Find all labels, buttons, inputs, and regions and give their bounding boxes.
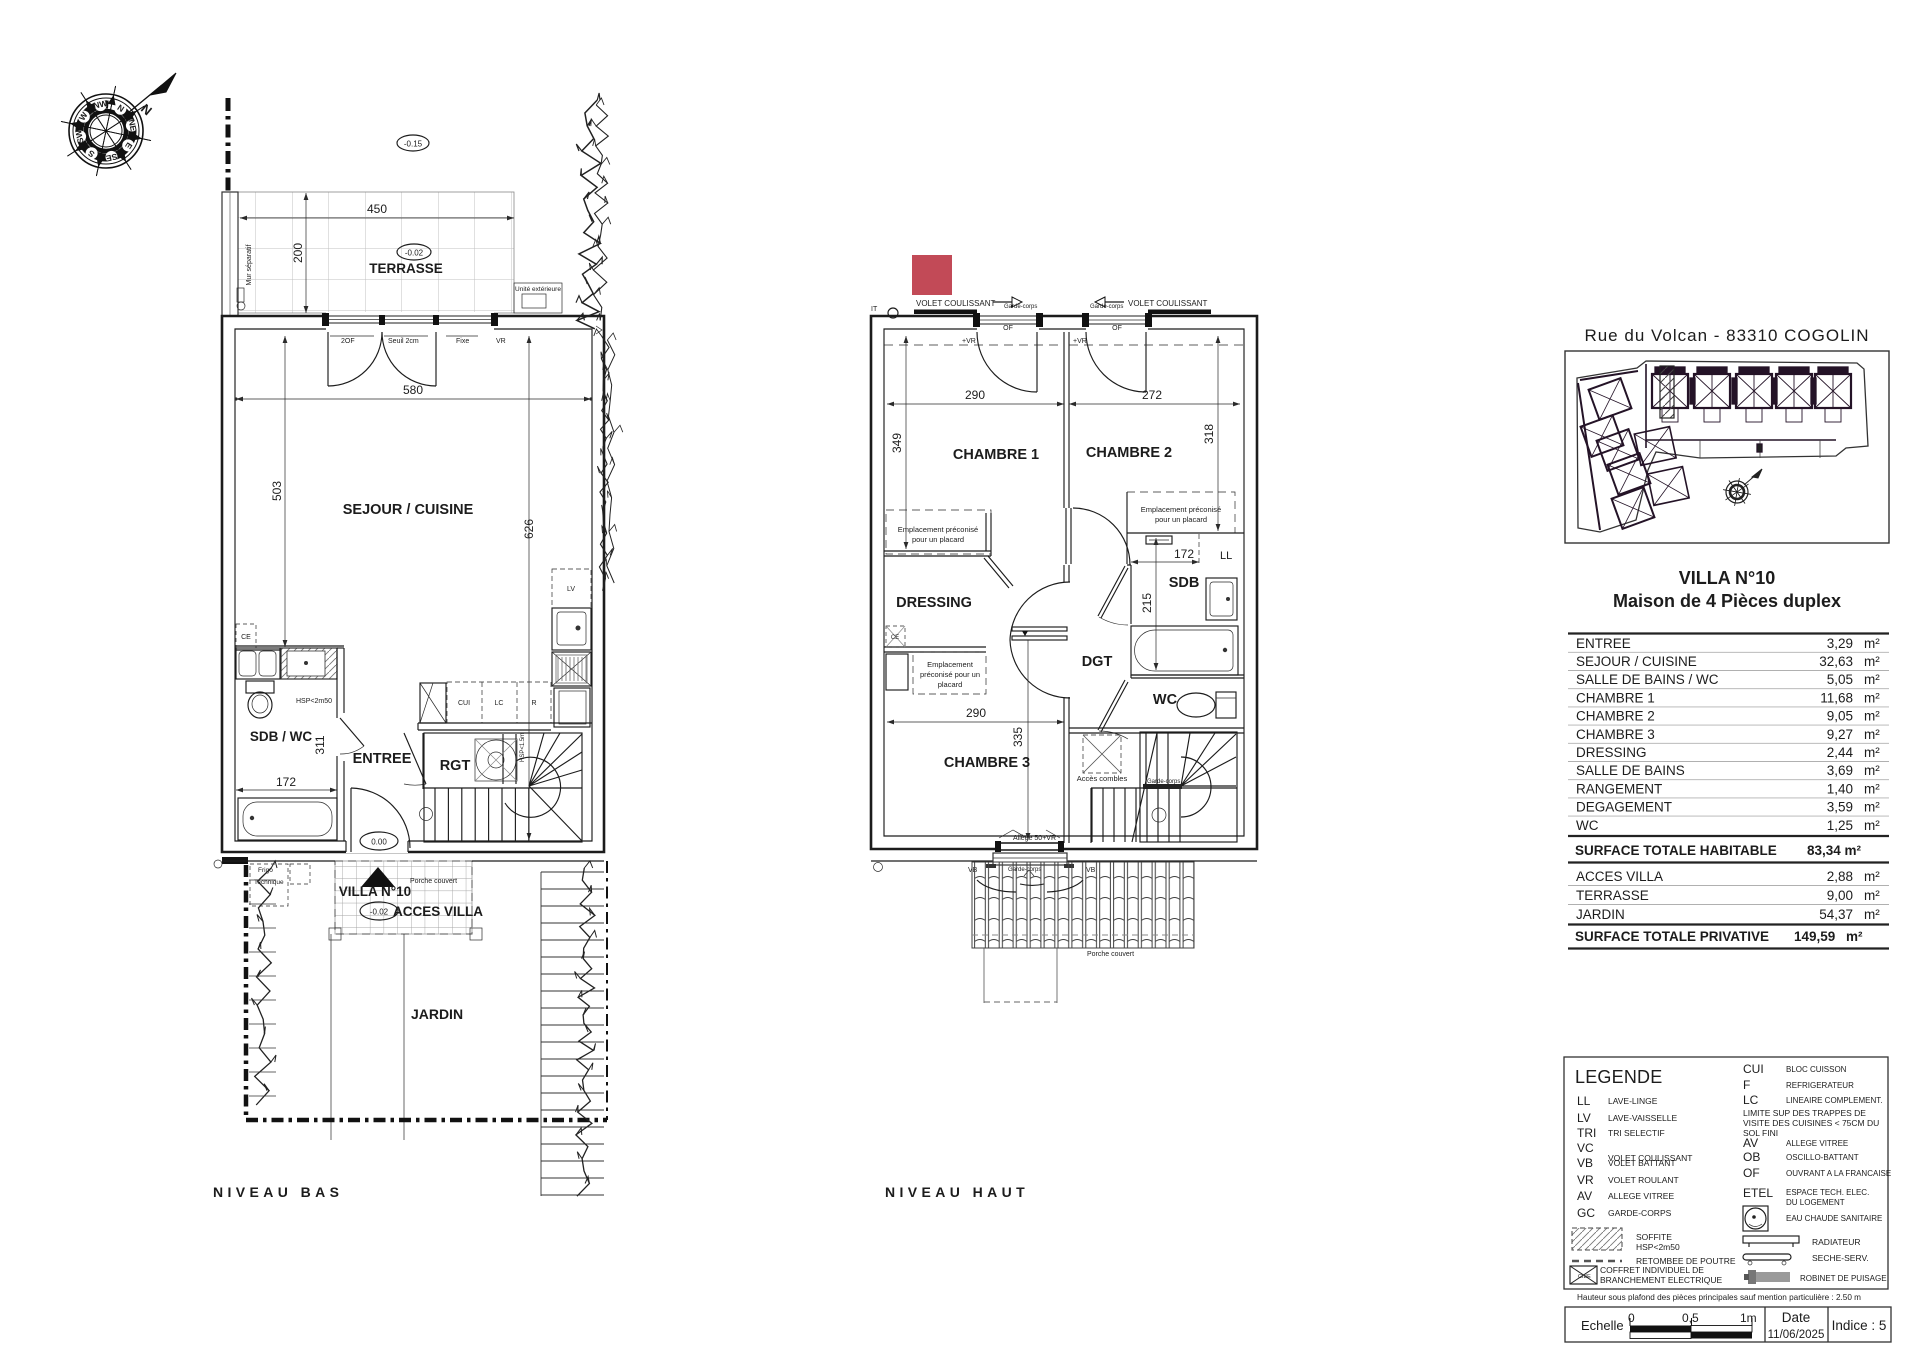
svg-text:ALLEGE VITREE: ALLEGE VITREE (1608, 1191, 1674, 1201)
svg-text:VISITE DES CUISINES < 75CM DU: VISITE DES CUISINES < 75CM DU (1743, 1118, 1879, 1128)
svg-text:m²: m² (1846, 929, 1863, 944)
svg-text:OF: OF (1743, 1166, 1760, 1180)
svg-text:OB: OB (1743, 1150, 1760, 1164)
svg-text:Mur séparatif: Mur séparatif (246, 245, 253, 286)
svg-text:TRI SELECTIF: TRI SELECTIF (1608, 1128, 1665, 1138)
svg-text:HSP<2m50: HSP<2m50 (296, 698, 332, 705)
svg-text:+VR: +VR (1073, 338, 1087, 345)
svg-text:2OF: 2OF (341, 338, 355, 345)
svg-text:LINEAIRE COMPLEMENT.: LINEAIRE COMPLEMENT. (1786, 1096, 1882, 1105)
svg-text:2,44: 2,44 (1827, 745, 1854, 760)
svg-text:RADIATEUR: RADIATEUR (1812, 1237, 1861, 1247)
svg-text:WC: WC (1576, 818, 1599, 833)
svg-text:m²: m² (1864, 745, 1880, 760)
svg-text:m²: m² (1864, 763, 1880, 778)
svg-text:9,27: 9,27 (1827, 727, 1853, 742)
svg-text:SURFACE TOTALE HABITABLE: SURFACE TOTALE HABITABLE (1575, 843, 1777, 858)
svg-text:BRANCHEMENT ELECTRIQUE: BRANCHEMENT ELECTRIQUE (1600, 1275, 1722, 1285)
svg-text:3,69: 3,69 (1827, 763, 1853, 778)
svg-text:CHAMBRE 2: CHAMBRE 2 (1576, 709, 1655, 724)
svg-text:AV: AV (1577, 1189, 1592, 1203)
svg-text:REFRIGERATEUR: REFRIGERATEUR (1786, 1081, 1854, 1090)
svg-text:NIVEAU HAUT: NIVEAU HAUT (885, 1184, 1029, 1200)
svg-text:9,05: 9,05 (1827, 709, 1853, 724)
svg-text:DRESSING: DRESSING (896, 595, 972, 611)
svg-text:GARDE-CORPS: GARDE-CORPS (1608, 1208, 1672, 1218)
svg-text:SEJOUR / CUISINE: SEJOUR / CUISINE (1576, 654, 1697, 669)
svg-text:318: 318 (1202, 424, 1216, 444)
svg-text:+VR: +VR (962, 338, 976, 345)
svg-text:m²: m² (1864, 818, 1880, 833)
svg-text:VB: VB (1577, 1156, 1593, 1170)
svg-text:9,00: 9,00 (1827, 888, 1853, 903)
svg-text:R: R (531, 700, 536, 707)
svg-text:COFFRET INDIVIDUEL DE: COFFRET INDIVIDUEL DE (1600, 1265, 1704, 1275)
svg-text:TERRASSE: TERRASSE (369, 261, 443, 276)
svg-text:ALLEGE VITREE: ALLEGE VITREE (1786, 1139, 1848, 1148)
svg-text:CUI: CUI (458, 700, 470, 707)
svg-text:m²: m² (1864, 672, 1880, 687)
svg-text:272: 272 (1142, 388, 1162, 402)
svg-text:VOLET ROULANT: VOLET ROULANT (1608, 1175, 1679, 1185)
svg-text:CUI: CUI (1743, 1062, 1764, 1076)
svg-text:Porche couvert: Porche couvert (410, 878, 457, 885)
svg-text:m²: m² (1864, 781, 1880, 796)
svg-text:CHAMBRE 1: CHAMBRE 1 (1576, 690, 1655, 705)
svg-text:pour un placard: pour un placard (1155, 515, 1207, 524)
svg-text:DGT: DGT (1082, 654, 1113, 670)
svg-text:LV: LV (567, 586, 575, 593)
svg-text:LAVE-LINGE: LAVE-LINGE (1608, 1096, 1658, 1106)
svg-text:SALLE DE BAINS: SALLE DE BAINS (1576, 763, 1685, 778)
svg-text:Hauteur sous plafond des pièce: Hauteur sous plafond des pièces principa… (1577, 1293, 1861, 1302)
svg-text:215: 215 (1140, 593, 1154, 613)
svg-text:HSP<1.5m: HSP<1.5m (520, 733, 526, 762)
svg-text:Rue du Volcan - 83310 COGOLIN: Rue du Volcan - 83310 COGOLIN (1584, 326, 1869, 345)
svg-text:1,40: 1,40 (1827, 781, 1853, 796)
svg-text:Indice : 5: Indice : 5 (1832, 1318, 1887, 1333)
svg-text:Seuil 2cm: Seuil 2cm (388, 338, 419, 345)
svg-text:OSCILLO-BATTANT: OSCILLO-BATTANT (1786, 1153, 1859, 1162)
svg-text:OF: OF (1003, 325, 1013, 332)
svg-text:Echelle: Echelle (1581, 1318, 1624, 1333)
svg-text:m²: m² (1864, 654, 1880, 669)
svg-text:CHAMBRE 1: CHAMBRE 1 (953, 447, 1039, 463)
svg-text:préconisé pour un: préconisé pour un (920, 670, 980, 679)
svg-text:VILLA N°10: VILLA N°10 (1679, 568, 1776, 588)
svg-text:Fixe: Fixe (456, 338, 469, 345)
svg-text:-0.02: -0.02 (370, 908, 389, 917)
svg-text:CHAMBRE 3: CHAMBRE 3 (944, 755, 1030, 771)
svg-text:VR: VR (1577, 1173, 1594, 1187)
svg-text:ENTREE: ENTREE (1576, 636, 1631, 651)
svg-text:m²: m² (1864, 800, 1880, 815)
svg-text:LC: LC (1743, 1093, 1759, 1107)
svg-text:2,88: 2,88 (1827, 869, 1853, 884)
svg-text:EAU CHAUDE SANITAIRE: EAU CHAUDE SANITAIRE (1786, 1214, 1882, 1223)
svg-text:580: 580 (403, 383, 423, 397)
svg-text:VILLA N°10: VILLA N°10 (339, 884, 411, 899)
svg-text:3,59: 3,59 (1827, 800, 1853, 815)
svg-text:DU LOGEMENT: DU LOGEMENT (1786, 1198, 1845, 1207)
svg-text:Emplacement préconisé: Emplacement préconisé (898, 525, 978, 534)
svg-text:Emplacement: Emplacement (927, 660, 974, 669)
svg-text:Porche couvert: Porche couvert (1087, 951, 1134, 958)
svg-text:CE: CE (891, 635, 899, 641)
svg-text:Garde-corps: Garde-corps (1147, 779, 1180, 785)
svg-text:3,29: 3,29 (1827, 636, 1853, 651)
svg-text:200: 200 (291, 243, 305, 263)
svg-text:CIBE: CIBE (1578, 1274, 1591, 1280)
svg-text:SOFFITE: SOFFITE (1636, 1232, 1672, 1242)
svg-text:ENTREE: ENTREE (353, 751, 412, 767)
svg-text:32,63: 32,63 (1819, 654, 1853, 669)
svg-text:626: 626 (522, 519, 536, 539)
svg-text:450: 450 (367, 202, 387, 216)
svg-text:LC: LC (495, 700, 504, 707)
svg-text:RGT: RGT (440, 758, 471, 774)
svg-text:172: 172 (276, 775, 296, 789)
svg-text:Accès combles: Accès combles (1077, 774, 1128, 783)
svg-text:placard: placard (938, 680, 963, 689)
svg-text:-0.15: -0.15 (404, 140, 423, 149)
svg-text:11,68: 11,68 (1820, 690, 1853, 705)
svg-text:335: 335 (1011, 727, 1025, 747)
svg-text:pour un placard: pour un placard (912, 535, 964, 544)
svg-text:LV: LV (1577, 1111, 1591, 1125)
svg-text:OF: OF (1112, 325, 1122, 332)
svg-text:TERRASSE: TERRASSE (1576, 888, 1649, 903)
svg-text:149,59: 149,59 (1794, 929, 1835, 944)
svg-text:290: 290 (966, 706, 986, 720)
svg-text:CHAMBRE 3: CHAMBRE 3 (1576, 727, 1655, 742)
svg-text:ETEL: ETEL (1743, 1186, 1773, 1200)
svg-text:RANGEMENT: RANGEMENT (1576, 781, 1662, 796)
svg-text:WC: WC (1153, 692, 1178, 708)
svg-text:1,25: 1,25 (1827, 818, 1853, 833)
svg-text:83,34 m²: 83,34 m² (1807, 843, 1862, 858)
svg-text:IT: IT (871, 306, 878, 313)
svg-text:CHAMBRE 2: CHAMBRE 2 (1086, 445, 1172, 461)
svg-text:Unité extérieure: Unité extérieure (515, 286, 561, 293)
svg-text:LAVE-VAISSELLE: LAVE-VAISSELLE (1608, 1113, 1677, 1123)
svg-text:Garde-corps: Garde-corps (1004, 304, 1037, 310)
svg-text:m²: m² (1864, 636, 1880, 651)
svg-text:VC: VC (1577, 1141, 1594, 1155)
svg-text:m²: m² (1864, 869, 1880, 884)
svg-text:SDB: SDB (1169, 575, 1200, 591)
svg-text:ACCES VILLA: ACCES VILLA (393, 904, 483, 919)
svg-text:VR: VR (496, 338, 506, 345)
svg-text:m²: m² (1864, 727, 1880, 742)
svg-text:CE: CE (241, 634, 251, 641)
svg-text:ESPACE TECH. ELEC.: ESPACE TECH. ELEC. (1786, 1188, 1869, 1197)
svg-text:AV: AV (1743, 1136, 1758, 1150)
svg-text:54,37: 54,37 (1819, 907, 1853, 922)
svg-text:JARDIN: JARDIN (411, 1006, 463, 1022)
svg-text:OUVRANT A LA FRANCAISE: OUVRANT A LA FRANCAISE (1786, 1169, 1891, 1178)
svg-text:SURFACE TOTALE PRIVATIVE: SURFACE TOTALE PRIVATIVE (1575, 929, 1769, 944)
svg-text:HSP<2m50: HSP<2m50 (1636, 1242, 1680, 1252)
svg-text:349: 349 (890, 433, 904, 453)
svg-text:Date: Date (1782, 1310, 1811, 1325)
svg-text:VOLET COULISSANT: VOLET COULISSANT (1128, 299, 1208, 308)
svg-text:Emplacement préconisé: Emplacement préconisé (1141, 505, 1221, 514)
svg-text:0.00: 0.00 (371, 838, 387, 847)
svg-text:LL: LL (1220, 550, 1232, 562)
svg-text:LEGENDE: LEGENDE (1575, 1067, 1662, 1087)
svg-text:ACCES VILLA: ACCES VILLA (1576, 869, 1663, 884)
svg-text:SDB / WC: SDB / WC (250, 729, 312, 744)
svg-text:m²: m² (1864, 709, 1880, 724)
svg-text:290: 290 (965, 388, 985, 402)
svg-text:VOLET COULISSANT: VOLET COULISSANT (1608, 1153, 1692, 1163)
svg-text:m²: m² (1864, 907, 1880, 922)
svg-text:5,05: 5,05 (1827, 672, 1853, 687)
svg-text:m²: m² (1864, 690, 1880, 705)
svg-text:GC: GC (1577, 1206, 1595, 1220)
svg-text:JARDIN: JARDIN (1576, 907, 1625, 922)
svg-text:DRESSING: DRESSING (1576, 745, 1647, 760)
svg-text:NIVEAU BAS: NIVEAU BAS (213, 1184, 343, 1200)
svg-text:0: 0 (1628, 1311, 1635, 1325)
svg-text:LIMITE SUP DES TRAPPES DE: LIMITE SUP DES TRAPPES DE (1743, 1108, 1866, 1118)
svg-text:503: 503 (270, 481, 284, 501)
svg-text:1m: 1m (1740, 1311, 1757, 1325)
svg-text:Allège 50+VR: Allège 50+VR (1013, 835, 1056, 842)
svg-text:DEGAGEMENT: DEGAGEMENT (1576, 800, 1672, 815)
svg-text:F: F (1743, 1078, 1750, 1092)
svg-text:172: 172 (1174, 547, 1194, 561)
svg-text:BLOC CUISSON: BLOC CUISSON (1786, 1065, 1847, 1074)
svg-text:TRI: TRI (1577, 1126, 1596, 1140)
svg-text:m²: m² (1864, 888, 1880, 903)
svg-text:SALLE DE BAINS / WC: SALLE DE BAINS / WC (1576, 672, 1719, 687)
svg-text:LL: LL (1577, 1094, 1591, 1108)
svg-text:0,5: 0,5 (1682, 1311, 1699, 1325)
svg-text:ROBINET DE PUISAGE: ROBINET DE PUISAGE (1800, 1274, 1887, 1283)
svg-text:SECHE-SERV.: SECHE-SERV. (1812, 1253, 1869, 1263)
svg-text:Garde-corps: Garde-corps (1090, 304, 1123, 310)
svg-text:-0.02: -0.02 (405, 249, 424, 258)
svg-text:Maison de 4 Pièces duplex: Maison de 4 Pièces duplex (1613, 591, 1841, 611)
svg-text:SEJOUR / CUISINE: SEJOUR / CUISINE (343, 502, 474, 518)
svg-text:11/06/2025: 11/06/2025 (1768, 1329, 1825, 1341)
svg-text:SOL FINI: SOL FINI (1743, 1128, 1778, 1138)
svg-text:VOLET COULISSANT: VOLET COULISSANT (916, 299, 996, 308)
svg-text:311: 311 (313, 735, 327, 754)
